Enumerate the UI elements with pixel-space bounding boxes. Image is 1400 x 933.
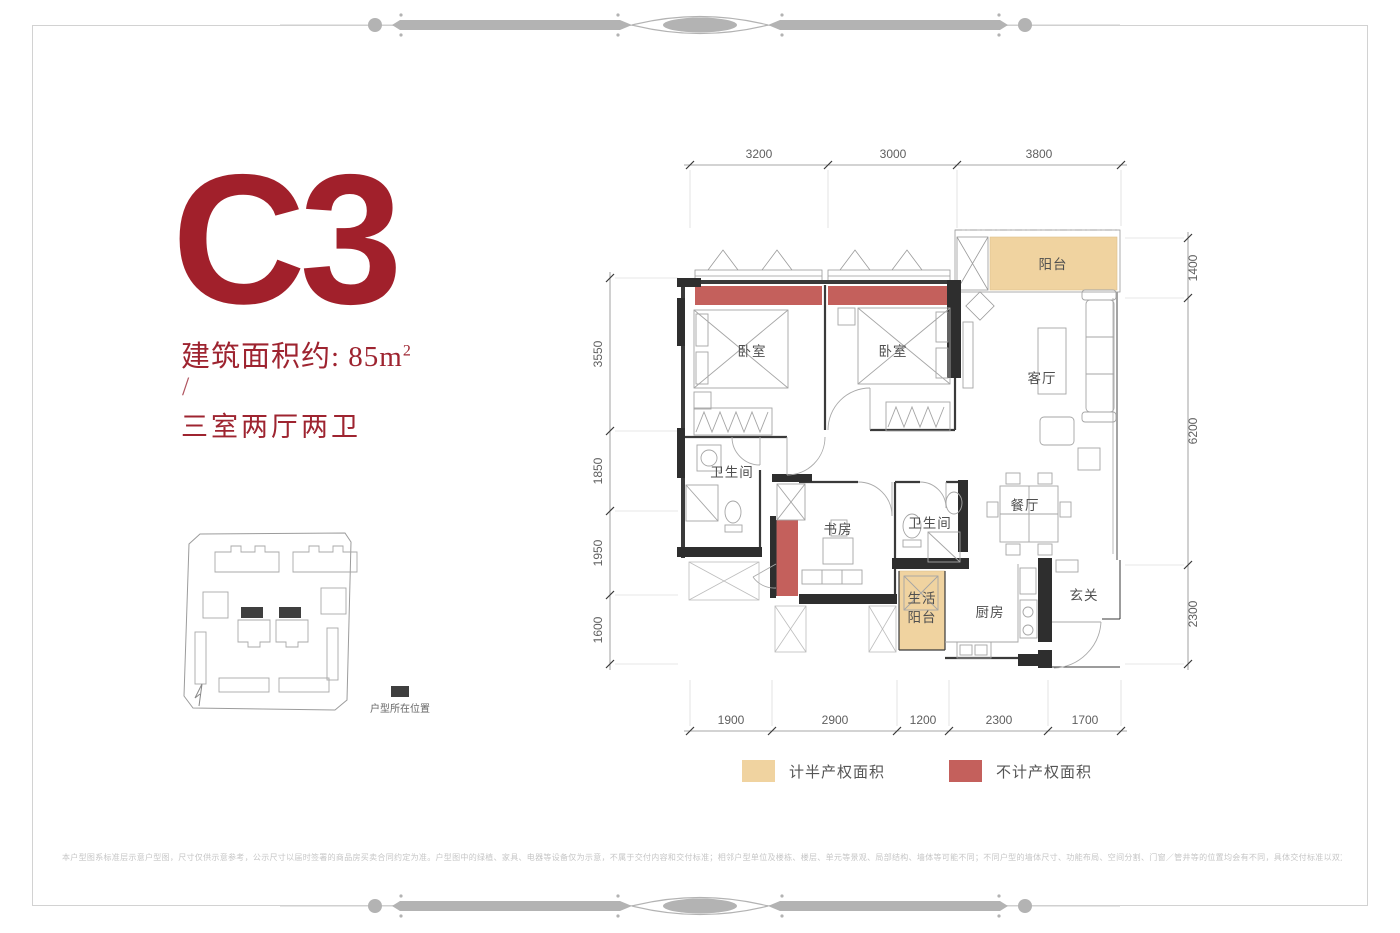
dim-right-1: 1400 <box>1186 254 1200 281</box>
dim-top-3: 3800 <box>1026 147 1053 161</box>
legend-label-no-property: 不计产权面积 <box>996 761 1092 782</box>
bottom-ornament-divider <box>280 890 1120 922</box>
room-label-utility-balcony-line1: 生活 <box>908 591 937 606</box>
dim-left-2: 1850 <box>591 457 605 484</box>
legend-label-half-property: 计半产权面积 <box>789 761 885 782</box>
bay-window-area-1 <box>695 286 822 305</box>
unit-location-markers <box>241 607 301 618</box>
room-layout-text: 三室两厅两卫 <box>181 405 361 444</box>
colored-areas <box>695 237 1117 650</box>
room-label-entrance: 玄关 <box>1070 587 1099 603</box>
legend-swatch-half-property <box>742 760 775 782</box>
floor-plan: 3200 3000 3800 1900 2900 1200 2300 1700 … <box>580 130 1220 790</box>
location-legend-label: 户型所在位置 <box>370 702 430 715</box>
bay-window-area-3 <box>776 520 798 596</box>
room-label-bathroom-1: 卫生间 <box>710 465 754 480</box>
room-label-balcony: 阳台 <box>1039 257 1068 272</box>
north-arrow-icon <box>195 684 202 706</box>
separator-slash: / <box>182 372 189 402</box>
room-label-living-room: 客厅 <box>1028 370 1057 386</box>
dim-bottom-1: 1900 <box>718 713 745 727</box>
top-ornament-divider <box>280 9 1120 41</box>
site-boundary <box>184 533 351 710</box>
dim-top-2: 3000 <box>880 147 907 161</box>
building-area-text: 建筑面积约: 85m2 <box>181 333 412 375</box>
room-label-study: 书房 <box>824 522 853 537</box>
dim-left-1: 3550 <box>591 340 605 367</box>
room-label-bedroom-1: 卧室 <box>738 343 767 359</box>
ornament-left-dot <box>368 18 382 32</box>
area-prefix: 建筑面积约: 85m <box>181 341 403 373</box>
site-buildings <box>195 546 357 692</box>
room-label-utility-balcony-line2: 阳台 <box>908 610 937 625</box>
disclaimer-text: 本户型图系标准层示意户型图，尺寸仅供示意参考，公示尺寸以届时签署的商品房买卖合同… <box>62 852 1342 863</box>
ornament-right-dot <box>1018 18 1032 32</box>
legend-swatch-no-property <box>949 760 982 782</box>
site-plan: 户型所在位置 <box>175 520 455 730</box>
location-legend-swatch <box>391 686 409 697</box>
room-label-bedroom-2: 卧室 <box>879 343 908 359</box>
dim-right-2: 6200 <box>1186 417 1200 444</box>
room-label-dining-room: 餐厅 <box>1011 498 1040 513</box>
room-label-bathroom-2: 卫生间 <box>908 516 952 531</box>
dim-bottom-5: 1700 <box>1072 713 1099 727</box>
dim-top-1: 3200 <box>746 147 773 161</box>
dim-bottom-2: 2900 <box>822 713 849 727</box>
room-label-kitchen: 厨房 <box>976 605 1005 620</box>
page: C3 建筑面积约: 85m2 / 三室两厅两卫 户型所在位置 <box>0 0 1400 933</box>
dim-bottom-4: 2300 <box>986 713 1013 727</box>
dim-left-3: 1950 <box>591 539 605 566</box>
bay-window-area-2 <box>828 286 950 305</box>
area-superscript: 2 <box>403 342 412 359</box>
dim-bottom-3: 1200 <box>910 713 937 727</box>
area-legend: 计半产权面积 不计产权面积 <box>742 760 1142 782</box>
unit-code-title: C3 <box>172 148 397 333</box>
dim-left-4: 1600 <box>591 616 605 643</box>
dim-right-3: 2300 <box>1186 600 1200 627</box>
